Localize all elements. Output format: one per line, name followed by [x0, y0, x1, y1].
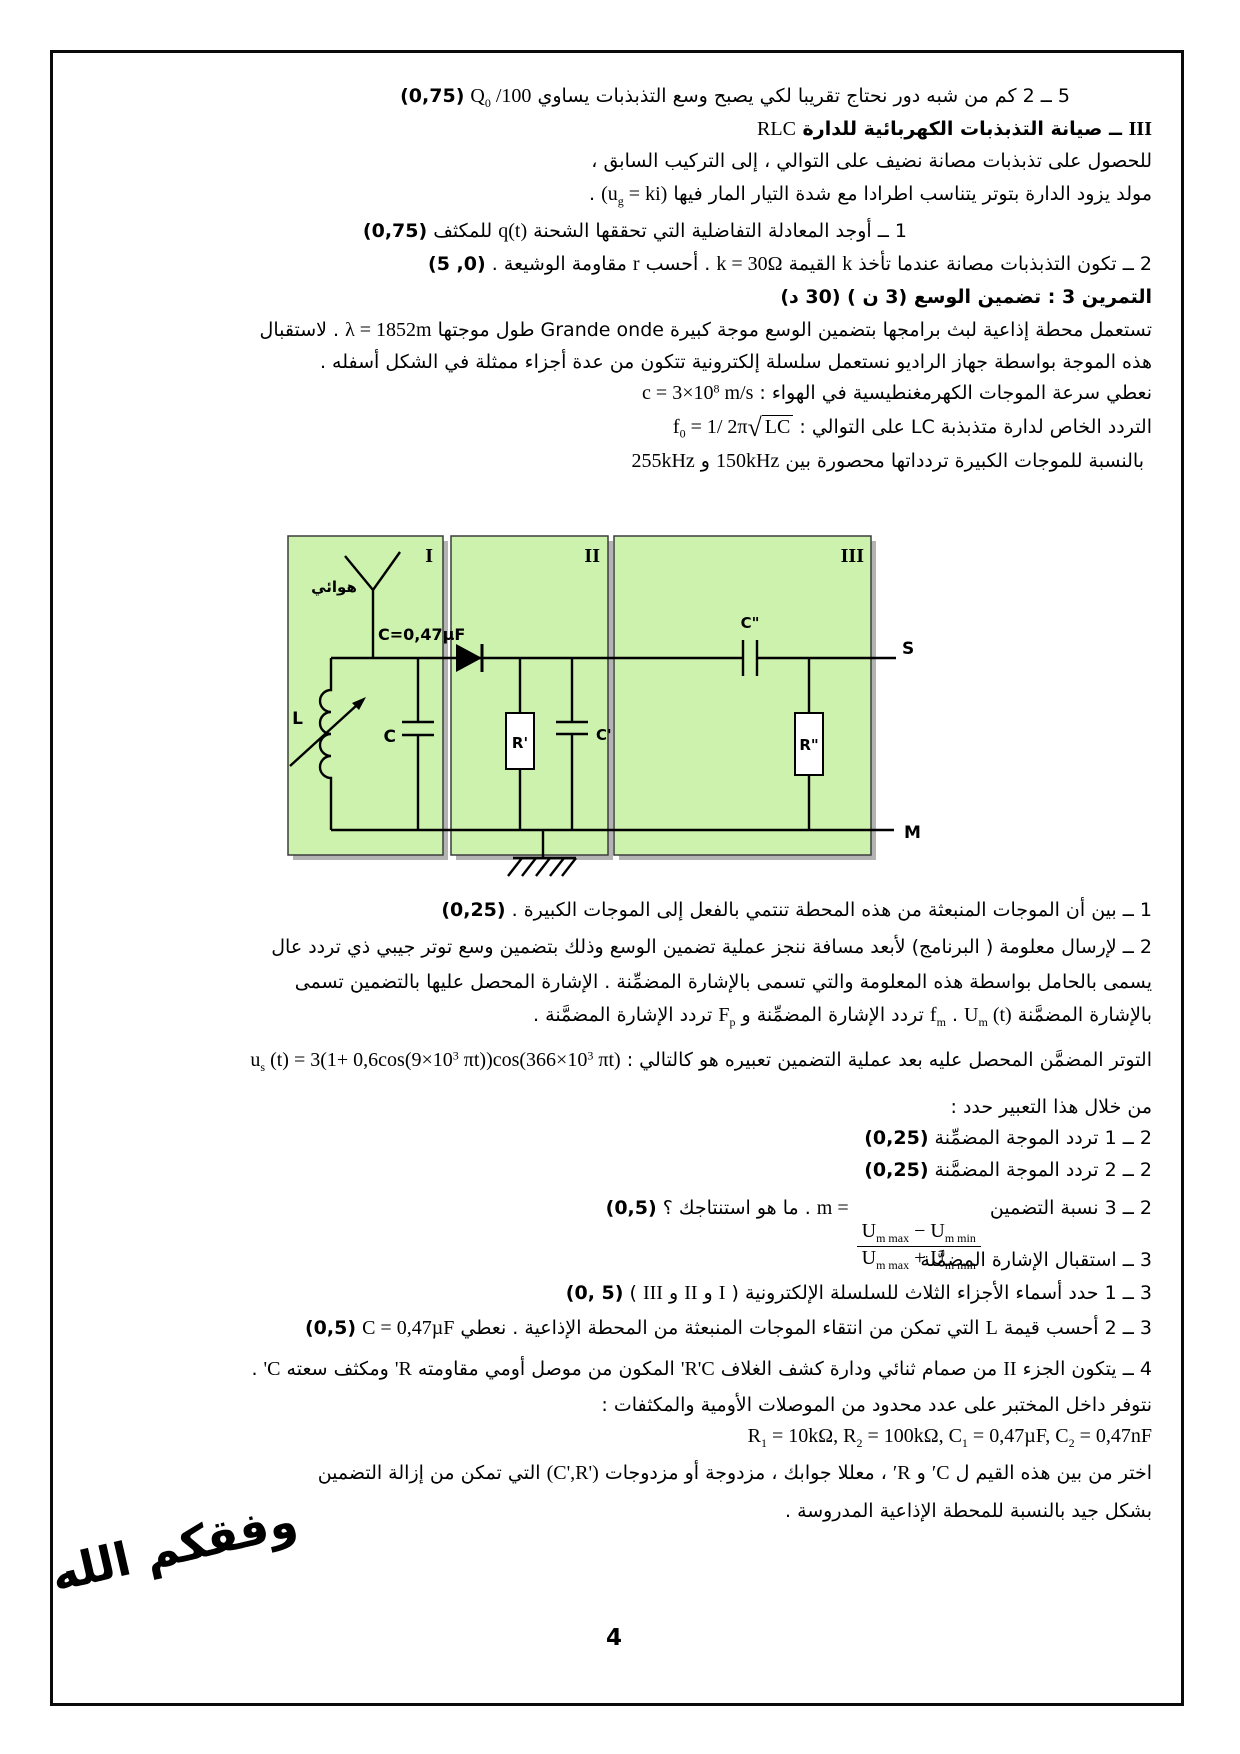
text-segment: . لاستقبال	[260, 319, 346, 341]
text-segment: (0,75)	[363, 220, 427, 242]
text-segment: LC	[765, 416, 791, 438]
text-line-1: 5 ــ 2 كم من شبه دور نحتاج تقريبا لكي يص…	[400, 84, 1070, 111]
text-line-15: يسمى بالحامل بواسطة هذه المعلومة والتي ت…	[295, 971, 1152, 995]
text-line-3: للحصول على تذبذبات مصانة نضيف على التوال…	[591, 150, 1152, 174]
text-line-5: 1 ــ أوجد المعادلة التفاضلية التي تحققها…	[363, 219, 907, 244]
text-segment: m min	[945, 1231, 976, 1245]
text-segment: تستعمل محطة إذاعية لبث برامجها بتضمين ال…	[664, 319, 1152, 341]
text-segment: (C',R')	[547, 1462, 599, 1484]
text-segment: m max	[876, 1231, 909, 1245]
text-segment: التي تمكن من انتقاء الموجات المنبعثة من …	[454, 1317, 985, 1339]
text-line-20: 2 ــ 2 تردد الموجة المضمَّنة (0,25)	[864, 1159, 1152, 1183]
text-segment: (0,25)	[864, 1159, 928, 1181]
text-segment: m/s	[719, 382, 753, 404]
ground-icon	[508, 858, 576, 876]
text-segment: تردد الإشارة المضمِّنة و	[735, 1004, 929, 1026]
text-line-16: بالإشارة المضمَّنة Um (t) . fm تردد الإش…	[533, 1003, 1152, 1030]
text-segment: القيمة	[783, 253, 843, 275]
text-segment: مقاومة الوشيعة .	[486, 253, 633, 275]
text-segment: .	[251, 1358, 263, 1380]
text-segment: على التوالي :	[793, 416, 911, 438]
block-III-label: III	[841, 545, 865, 567]
text-segment: m	[937, 1015, 946, 1029]
text-line-19: 2 ــ 1 تردد الموجة المضمِّنة (0,25)	[864, 1127, 1152, 1151]
text-segment: (t)	[988, 1004, 1012, 1026]
text-segment: f	[930, 1004, 937, 1026]
text-segment: 2 ــ 2 تردد الموجة المضمَّنة	[929, 1159, 1153, 1181]
terminal-S-label: S	[902, 639, 914, 659]
text-line-2: III ــ صيانة التذبذبات الكهربائية للدارة…	[757, 117, 1152, 142]
text-segment: (0, 5)	[428, 253, 486, 275]
text-segment: و	[911, 1462, 932, 1484]
text-segment: يسمى بالحامل بواسطة هذه المعلومة والتي ت…	[295, 971, 1152, 993]
text-segment: و	[663, 1282, 684, 1304]
text-segment: (0,75)	[400, 85, 464, 107]
math-expression: f0 = 1/ 2π√LC	[673, 412, 793, 445]
text-segment: πt)	[593, 1049, 620, 1071]
text-segment: C = 0,47µF	[362, 1317, 454, 1339]
text-segment: = 0,47nF	[1075, 1425, 1152, 1447]
text-segment: q(t)	[498, 220, 527, 242]
text-segment: (0,25)	[864, 1127, 928, 1149]
Rdprime-label: R"	[799, 736, 818, 754]
text-segment: (0, 5)	[566, 1282, 624, 1304]
text-segment: المكون من موصل أومي مقاومته	[412, 1358, 681, 1380]
text-line-9: هذه الموجة بواسطة جهاز الراديو نستعمل سل…	[320, 351, 1152, 375]
text-segment: (0,25)	[441, 899, 505, 921]
text-segment: 2 ــ 3 نسبة التضمين	[984, 1197, 1152, 1219]
text-line-18: من خلال هذا التعبير حدد :	[951, 1096, 1153, 1120]
text-segment: مولد يزود الدارة بتوتر يتناسب اطرادا مع …	[667, 183, 1152, 205]
text-segment: (u	[601, 183, 618, 205]
text-segment: 3 ــ 1 حدد أسماء الأجزاء الثلاث للسلسلة …	[725, 1282, 1152, 1304]
text-line-7: التمرين 3 : تضمين الوسع (3 ن ) (30 د)	[780, 286, 1152, 310]
cap-value-label: C=0,47µF	[378, 625, 465, 644]
text-segment: 5 ــ 2 كم من شبه دور نحتاج تقريبا لكي يص…	[531, 85, 1070, 107]
text-segment: R	[748, 1425, 761, 1447]
text-segment: .	[589, 183, 601, 205]
math-expression: (ug = ki)	[601, 182, 667, 209]
text-segment: و	[698, 1282, 719, 1304]
text-segment: التوتر المضمَّن المحصل عليه بعد عملية ال…	[621, 1049, 1152, 1071]
text-line-12: بالنسبة للموجات الكبيرة تردداتها محصورة …	[631, 449, 1144, 474]
text-segment: = 0,47µF, C	[968, 1425, 1069, 1447]
math-expression: q(t)	[498, 219, 527, 244]
math-expression: (C',R')	[547, 1461, 599, 1486]
text-segment: )	[623, 1282, 643, 1304]
text-segment: بالنسبة للموجات الكبيرة تردداتها محصورة …	[779, 450, 1144, 472]
cap-C-label: C	[384, 727, 396, 747]
text-segment: F	[718, 1004, 729, 1026]
text-segment: (0,5)	[305, 1317, 356, 1339]
square-root: √LC	[748, 412, 794, 445]
text-segment: λ = 1852m	[345, 319, 432, 341]
text-segment: نتوفر داخل المختبر على عدد محدود من المو…	[601, 1394, 1152, 1416]
text-segment: من خلال هذا التعبير حدد :	[951, 1096, 1153, 1118]
text-segment: U	[862, 1247, 876, 1269]
text-segment: ومكثف سعته	[280, 1358, 394, 1380]
text-line-29: بشكل جيد بالنسبة للمحطة الإذاعية المدروس…	[785, 1500, 1152, 1524]
text-segment: (t) = 3(1+ 0,6cos(9×10	[265, 1049, 453, 1071]
math-expression: R1 = 10kΩ, R2 = 100kΩ, C1 = 0,47µF, C2 =…	[748, 1424, 1152, 1451]
text-segment: m =	[817, 1197, 854, 1219]
text-segment: f	[673, 416, 680, 438]
text-segment: التردد الخاص لدارة متذبذبة	[935, 416, 1152, 438]
text-segment: III	[643, 1282, 663, 1304]
text-segment: هذه الموجة بواسطة جهاز الراديو نستعمل سل…	[320, 351, 1152, 373]
text-segment: 2 ــ 1 تردد الموجة المضمِّنة	[929, 1127, 1153, 1149]
text-line-22: 3 ــ استقبال الإشارة المضمَّنة	[920, 1249, 1152, 1273]
text-line-25: 4 ــ يتكون الجزء II من صمام ثنائي ودارة …	[251, 1357, 1152, 1382]
text-segment: = 1/ 2π	[686, 416, 748, 438]
text-line-17: التوتر المضمَّن المحصل عليه بعد عملية ال…	[250, 1048, 1152, 1075]
text-segment: II	[684, 1282, 697, 1304]
text-segment: C'	[264, 1358, 281, 1380]
circuit-blocks	[288, 536, 871, 855]
text-line-24: 3 ــ 2 أحسب قيمة L التي تمكن من انتقاء ا…	[305, 1316, 1152, 1341]
text-segment: بالإشارة المضمَّنة	[1012, 1004, 1152, 1026]
text-segment: ــ صيانة التذبذبات الكهربائية للدارة	[796, 118, 1129, 140]
text-segment: = 10kΩ, R	[767, 1425, 856, 1447]
text-segment: R'	[395, 1358, 412, 1380]
block-II	[451, 536, 608, 855]
math-expression: Q0 /100	[470, 84, 531, 111]
text-segment: 3 ــ استقبال الإشارة المضمَّنة	[920, 1249, 1152, 1271]
text-segment: C′	[932, 1462, 950, 1484]
block-I-label: I	[425, 545, 433, 567]
inductor-label: L	[292, 709, 303, 729]
text-segment: . أحسب	[640, 253, 717, 275]
text-segment: u	[250, 1049, 260, 1071]
text-segment: و	[695, 450, 716, 472]
text-segment: III	[1129, 118, 1152, 140]
text-segment: .	[946, 1004, 964, 1026]
text-segment: = ki)	[624, 183, 668, 205]
text-segment: r	[633, 253, 640, 275]
page-number: 4	[50, 1625, 1178, 1651]
text-segment: 1 ــ أوجد المعادلة التفاضلية التي تحققها…	[527, 220, 907, 242]
text-segment: للمكثف	[427, 220, 498, 242]
math-expression: Fp	[718, 1003, 735, 1030]
text-segment: /100	[491, 85, 532, 107]
text-segment: التمرين 3 : تضمين الوسع (3 ن ) (30 د)	[780, 286, 1152, 308]
text-segment: RLC	[757, 118, 796, 140]
text-line-13: 1 ــ بين أن الموجات المنبعثة من هذه المح…	[441, 899, 1152, 923]
text-segment: − U	[909, 1220, 945, 1242]
text-segment: بشكل جيد بالنسبة للمحطة الإذاعية المدروس…	[785, 1500, 1152, 1522]
text-segment: 2 ــ لإرسال معلومة ( البرنامج) لأبعد مسا…	[271, 936, 1152, 958]
text-line-4: مولد يزود الدارة بتوتر يتناسب اطرادا مع …	[589, 182, 1152, 209]
text-segment: Q	[470, 85, 484, 107]
text-segment: (0,5)	[606, 1197, 657, 1219]
text-segment: II	[1003, 1358, 1016, 1380]
text-segment: 150kHz	[716, 450, 779, 472]
text-segment: 3 ــ 2 أحسب قيمة	[998, 1317, 1152, 1339]
math-expression: C = 0,47µF	[362, 1316, 454, 1341]
math-expression: λ = 1852m	[345, 318, 432, 343]
text-segment: من صمام ثنائي ودارة كشف الغلاف	[715, 1358, 1004, 1380]
Rprime-label: R'	[512, 734, 528, 752]
antenna-label: هوائي	[311, 578, 357, 596]
terminal-M-label: M	[904, 823, 921, 843]
block-II-label: II	[584, 545, 600, 567]
text-segment: LC	[911, 416, 935, 438]
text-segment: πt))cos(366×10	[459, 1049, 588, 1071]
text-segment: ، معللا جوابك ، مزدوجة أو مزدوجات	[599, 1462, 893, 1484]
text-segment: طول موجتها	[432, 319, 541, 341]
text-segment: 2 ــ تكون التذبذبات مصانة عندما تأخذ	[852, 253, 1152, 275]
exam-page: 5 ــ 2 كم من شبه دور نحتاج تقريبا لكي يص…	[0, 0, 1240, 1754]
text-segment: نعطي سرعة الموجات الكهرمغنطيسية في الهوا…	[753, 382, 1152, 404]
text-segment: R'C'	[681, 1358, 715, 1380]
Cprime-label: C'	[596, 726, 612, 744]
math-expression: k = 30Ω	[716, 252, 782, 277]
text-line-28: اختر من بين هذه القيم ل C′ و R′ ، معللا …	[318, 1461, 1152, 1486]
text-segment: تردد الإشارة المضمَّنة .	[533, 1004, 718, 1026]
text-segment: 255kHz	[631, 450, 694, 472]
text-line-10: نعطي سرعة الموجات الكهرمغنطيسية في الهوا…	[642, 381, 1152, 406]
math-expression: us (t) = 3(1+ 0,6cos(9×103 πt))cos(366×1…	[250, 1048, 620, 1075]
math-expression: Um (t)	[964, 1003, 1012, 1030]
text-segment: . ما هو استنتاجك ؟	[657, 1197, 817, 1219]
text-segment: U	[862, 1220, 876, 1242]
math-expression: c = 3×108 m/s	[642, 381, 753, 406]
text-line-23: 3 ــ 1 حدد أسماء الأجزاء الثلاث للسلسلة …	[566, 1281, 1152, 1306]
text-segment: c = 3×10	[642, 382, 713, 404]
text-segment: = 100kΩ, C	[862, 1425, 961, 1447]
circuit-diagram: I II III هوائي	[270, 530, 930, 895]
text-line-27: R1 = 10kΩ, R2 = 100kΩ, C1 = 0,47µF, C2 =…	[748, 1424, 1152, 1451]
text-segment: للحصول على تذبذبات مصانة نضيف على التوال…	[591, 150, 1152, 172]
text-segment: 1 ــ بين أن الموجات المنبعثة من هذه المح…	[506, 899, 1152, 921]
text-segment: m	[979, 1015, 988, 1029]
text-segment: R′	[893, 1462, 911, 1484]
text-segment: اختر من بين هذه القيم ل	[950, 1462, 1152, 1484]
text-segment: Grande onde	[541, 319, 664, 341]
text-segment: L	[986, 1317, 998, 1339]
Cdprime-label: C"	[741, 614, 760, 632]
text-line-11: التردد الخاص لدارة متذبذبة LC على التوال…	[673, 412, 1152, 445]
text-segment: U	[964, 1004, 978, 1026]
block-III	[614, 536, 871, 855]
text-line-6: 2 ــ تكون التذبذبات مصانة عندما تأخذ k ا…	[428, 252, 1152, 277]
text-segment: k = 30Ω	[716, 253, 782, 275]
text-segment: التي تمكن من إزالة التضمين	[318, 1462, 547, 1484]
text-line-8: تستعمل محطة إذاعية لبث برامجها بتضمين ال…	[260, 318, 1152, 343]
text-segment: m max	[876, 1257, 909, 1271]
text-segment: k	[842, 253, 852, 275]
text-line-14: 2 ــ لإرسال معلومة ( البرنامج) لأبعد مسا…	[271, 936, 1152, 960]
math-expression: fm	[930, 1003, 946, 1030]
text-line-26: نتوفر داخل المختبر على عدد محدود من المو…	[601, 1394, 1152, 1418]
text-segment: 4 ــ يتكون الجزء	[1017, 1358, 1152, 1380]
